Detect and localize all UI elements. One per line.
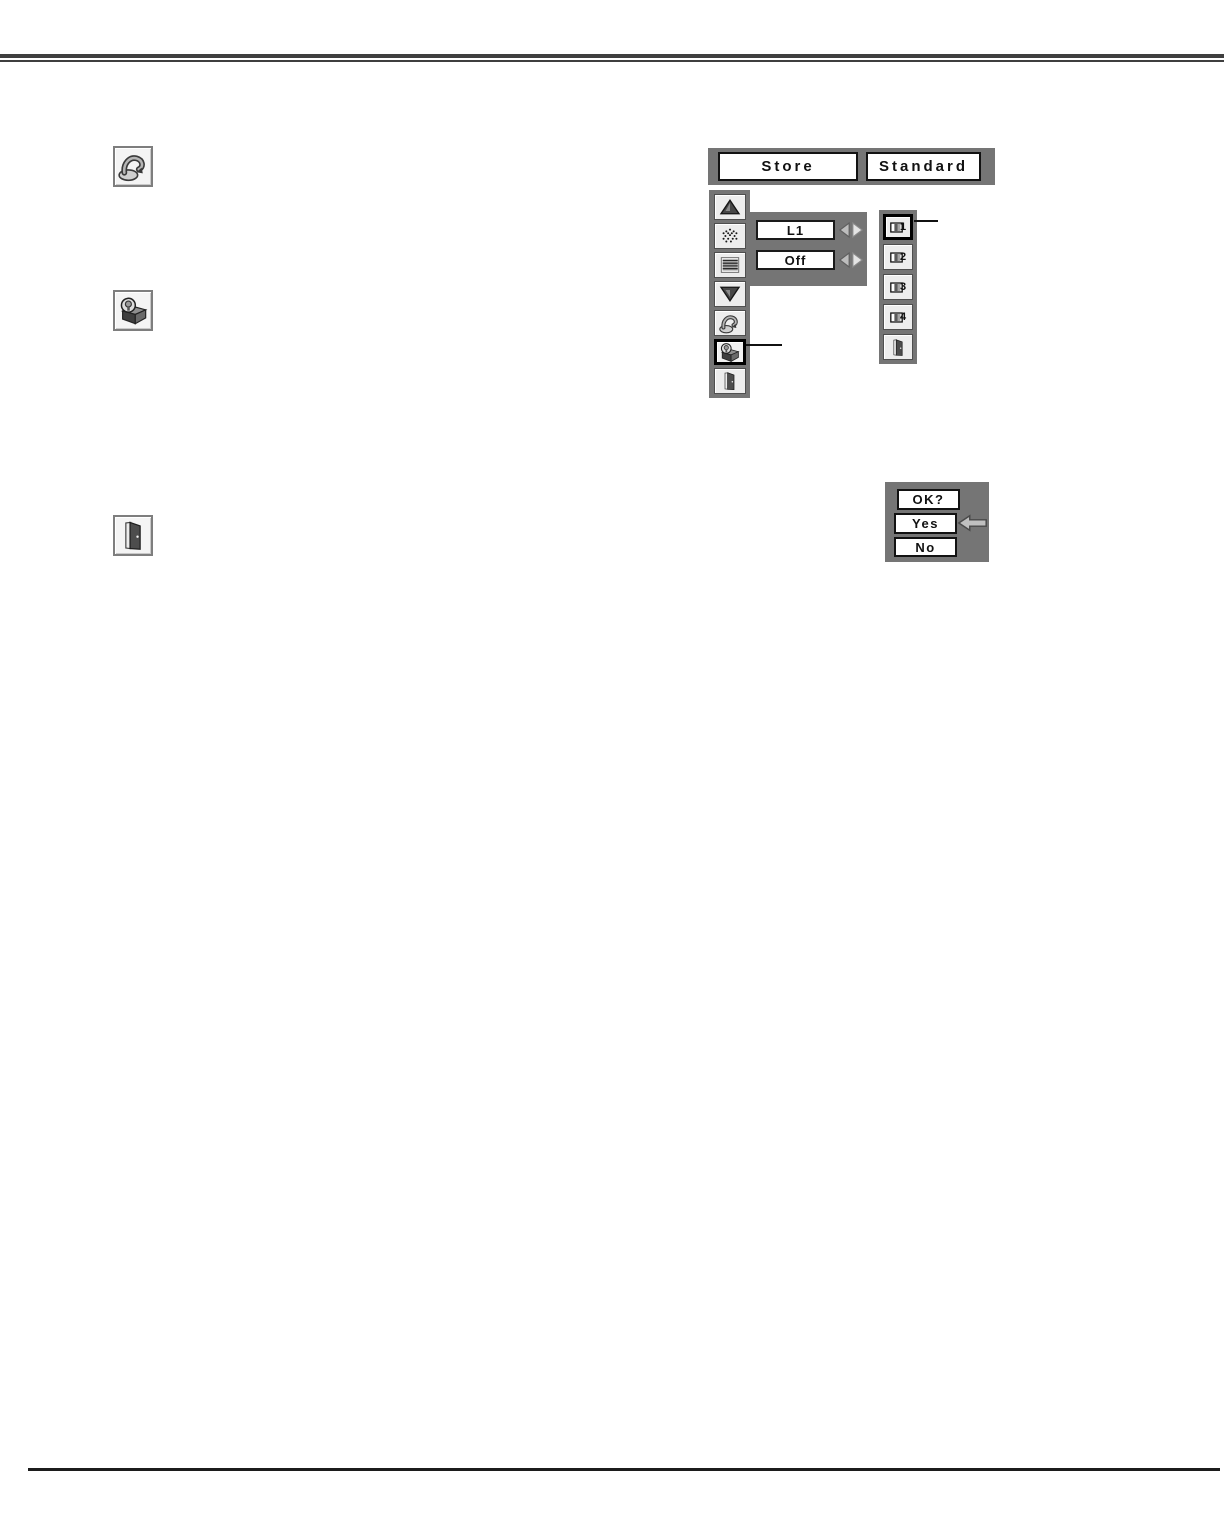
value-box-2: Off <box>756 250 835 270</box>
image-level-submenu: 1 2 3 4 <box>879 210 917 364</box>
standard-button[interactable]: Standard <box>866 152 981 181</box>
value-panel: L1 Off <box>750 212 867 286</box>
osd-menu-header: Store Standard <box>708 148 995 185</box>
reset-icon <box>113 146 153 187</box>
quit-door-icon <box>113 515 153 556</box>
store-cell-selected[interactable] <box>714 339 746 365</box>
top-rule-thin <box>0 60 1224 62</box>
left-right-arrows-icon[interactable] <box>838 251 864 269</box>
image1-number: 1 <box>900 221 906 233</box>
submenu-quit-cell[interactable] <box>883 334 913 360</box>
scroll-down-cell[interactable] <box>714 281 746 307</box>
image2-cell[interactable]: 2 <box>883 244 913 270</box>
h-lines-cell[interactable] <box>714 252 746 278</box>
no-button[interactable]: No <box>894 537 957 557</box>
image3-number: 3 <box>900 281 906 293</box>
image4-number: 4 <box>900 311 906 323</box>
image1-cell-selected[interactable]: 1 <box>883 214 913 240</box>
dots-pattern-cell[interactable] <box>714 223 746 249</box>
image1-callout-line <box>914 220 938 222</box>
left-right-arrows-icon[interactable] <box>838 221 864 239</box>
quit-cell[interactable] <box>714 368 746 394</box>
image3-cell[interactable]: 3 <box>883 274 913 300</box>
bottom-rule <box>28 1468 1220 1471</box>
top-rule-thick <box>0 54 1224 58</box>
value-box-1: L1 <box>756 220 835 240</box>
store-icon <box>113 290 153 331</box>
scroll-up-cell[interactable] <box>714 194 746 220</box>
image4-cell[interactable]: 4 <box>883 304 913 330</box>
image2-number: 2 <box>900 251 906 263</box>
store-button[interactable]: Store <box>718 152 858 181</box>
yes-button[interactable]: Yes <box>894 513 957 534</box>
dialog-title: OK? <box>897 489 960 510</box>
osd-menu-icon-strip <box>709 190 750 398</box>
left-arrow-icon <box>957 513 988 533</box>
reset-cell[interactable] <box>714 310 746 336</box>
confirm-dialog: OK? Yes No <box>885 482 989 562</box>
store-callout-line <box>746 344 782 346</box>
manual-page: Store Standard L1 Off <box>0 0 1224 1525</box>
